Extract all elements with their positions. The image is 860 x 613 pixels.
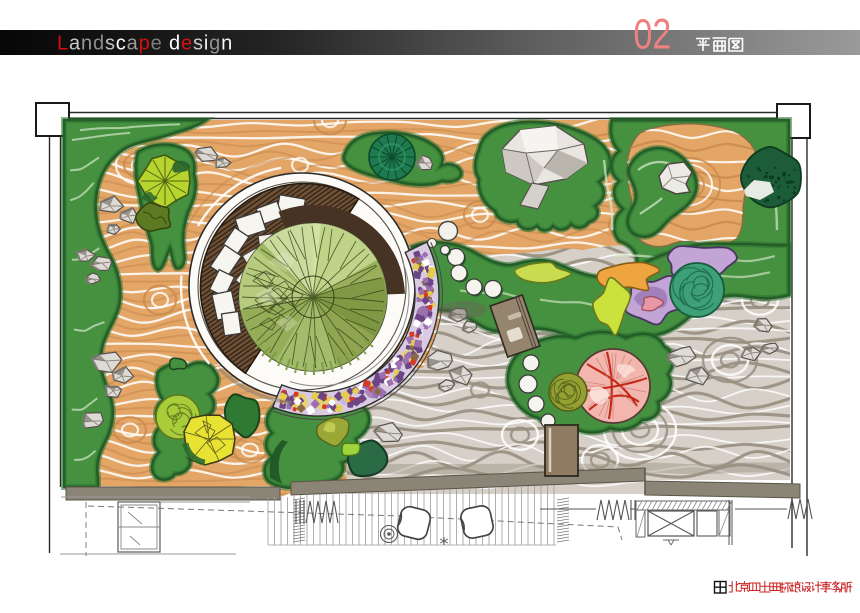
svg-text:02: 02 [634,11,672,59]
svg-text:Landscape design: Landscape design [57,33,233,55]
